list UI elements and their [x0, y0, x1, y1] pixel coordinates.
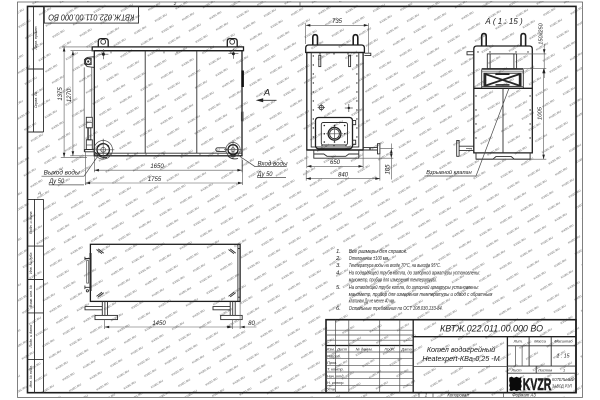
svg-text:На подводящей трубе котла, до: На подводящей трубе котла, до запорной а… [349, 269, 481, 276]
svg-text:1270: 1270 [67, 88, 73, 102]
svg-text:1.: 1. [336, 249, 341, 255]
svg-text:Утв.: Утв. [327, 387, 336, 392]
svg-text:5.: 5. [336, 285, 341, 291]
svg-text:6.: 6. [336, 306, 341, 312]
svg-text:Выход воды: Выход воды [44, 171, 81, 177]
svg-text:Подп. и дата: Подп. и дата [29, 325, 33, 348]
svg-text:80: 80 [248, 321, 255, 327]
svg-text:Вход воды: Вход воды [258, 161, 289, 167]
svg-text:На отводящей трубе котла, до з: На отводящей трубе котла, до запорной ар… [349, 284, 479, 291]
svg-text:840: 840 [338, 173, 349, 179]
svg-text:Лит.: Лит. [513, 338, 523, 343]
svg-text:2.: 2. [335, 256, 341, 262]
svg-text:Копировал: Копировал [447, 393, 469, 398]
svg-text:Подп. и дата: Подп. и дата [29, 211, 33, 234]
svg-text:Дата: Дата [400, 347, 412, 352]
svg-text:Нач. отд.: Нач. отд. [327, 373, 344, 378]
svg-text:1650: 1650 [150, 164, 164, 170]
svg-text:КВТЖ.022.011.00.000 ВО: КВТЖ.022.011.00.000 ВО [48, 13, 134, 22]
svg-text:Масса: Масса [534, 338, 546, 343]
svg-text:1755: 1755 [148, 177, 162, 183]
svg-text:Пров.: Пров. [327, 360, 337, 365]
svg-text:Изм.: Изм. [327, 347, 335, 352]
svg-text:Ду 50: Ду 50 [257, 172, 274, 178]
svg-text:1005: 1005 [538, 106, 544, 120]
svg-text:Формат А3: Формат А3 [512, 393, 536, 398]
svg-text:КВТЖ.022.011.00.000 ВО: КВТЖ.022.011.00.000 ВО [440, 323, 543, 333]
svg-text:Разраб.: Разраб. [327, 353, 341, 358]
svg-text:А: А [37, 190, 41, 195]
svg-text:Лист: Лист [336, 347, 348, 352]
svg-text:манометр, прибор для измерения: манометр, прибор для измерения температу… [349, 292, 493, 298]
svg-text:Инв. № подл.: Инв. № подл. [29, 365, 33, 387]
svg-text:Температура воды на входе 70°С: Температура воды на входе 70°С, на выход… [349, 263, 441, 269]
svg-text:1450: 1450 [152, 321, 166, 327]
svg-text:150х250: 150х250 [538, 22, 544, 44]
svg-text:Heatexpert-КВа-0,25 -М: Heatexpert-КВа-0,25 -М [422, 354, 499, 363]
svg-text:Масштаб: Масштаб [554, 338, 573, 343]
svg-text:3.: 3. [336, 263, 341, 269]
svg-text:Т. контр.: Т. контр. [327, 367, 344, 372]
svg-text:Все размеры для справок.: Все размеры для справок. [349, 249, 408, 255]
svg-text:Остальные требования по ОСТ 10: Остальные требования по ОСТ 108.030.133-… [349, 306, 443, 312]
svg-text:735: 735 [332, 19, 343, 25]
svg-text:манометр, прибор для измерения: манометр, прибор для измерения температу… [349, 277, 437, 283]
svg-text:Справ. №: Справ. № [34, 92, 38, 108]
svg-text:клапанам Ду не менее 40 мм.: клапанам Ду не менее 40 мм. [349, 298, 395, 304]
svg-text:4.: 4. [336, 270, 341, 276]
svg-text:Отклонение ±100 мм.: Отклонение ±100 мм. [349, 256, 390, 262]
svg-text:Ду 50: Ду 50 [48, 179, 65, 185]
svg-text:Взрывной клапан: Взрывной клапан [426, 169, 471, 176]
svg-text:А: А [263, 88, 270, 99]
svg-text:2: 2 [173, 1, 177, 6]
svg-text:1 : 15: 1 : 15 [557, 354, 570, 360]
svg-text:1: 1 [563, 368, 565, 373]
svg-text:А ( 1 : 15 ): А ( 1 : 15 ) [484, 17, 523, 26]
svg-text:Подп.: Подп. [385, 347, 395, 352]
svg-text:ЗАВОД РЭП: ЗАВОД РЭП [552, 384, 572, 389]
svg-text:KVZR: KVZR [523, 375, 552, 394]
svg-text:Инв. № дубл.: Инв. № дубл. [29, 252, 33, 274]
svg-text:Взам. инв. №: Взам. инв. № [29, 285, 33, 307]
svg-text:КОТЕЛЬНЫЙ: КОТЕЛЬНЫЙ [552, 377, 575, 382]
svg-text:650: 650 [330, 160, 341, 166]
svg-text:Н. контр.: Н. контр. [327, 380, 345, 385]
svg-text:№ докум.: № докум. [356, 347, 373, 352]
svg-text:Лист: Лист [511, 368, 523, 373]
svg-text:Перв. примен.: Перв. примен. [34, 26, 38, 50]
svg-text:Котел водогрейный: Котел водогрейный [427, 345, 495, 354]
svg-text:105: 105 [385, 164, 391, 175]
svg-text:Листов: Листов [537, 368, 552, 373]
svg-text:1375: 1375 [58, 87, 64, 101]
